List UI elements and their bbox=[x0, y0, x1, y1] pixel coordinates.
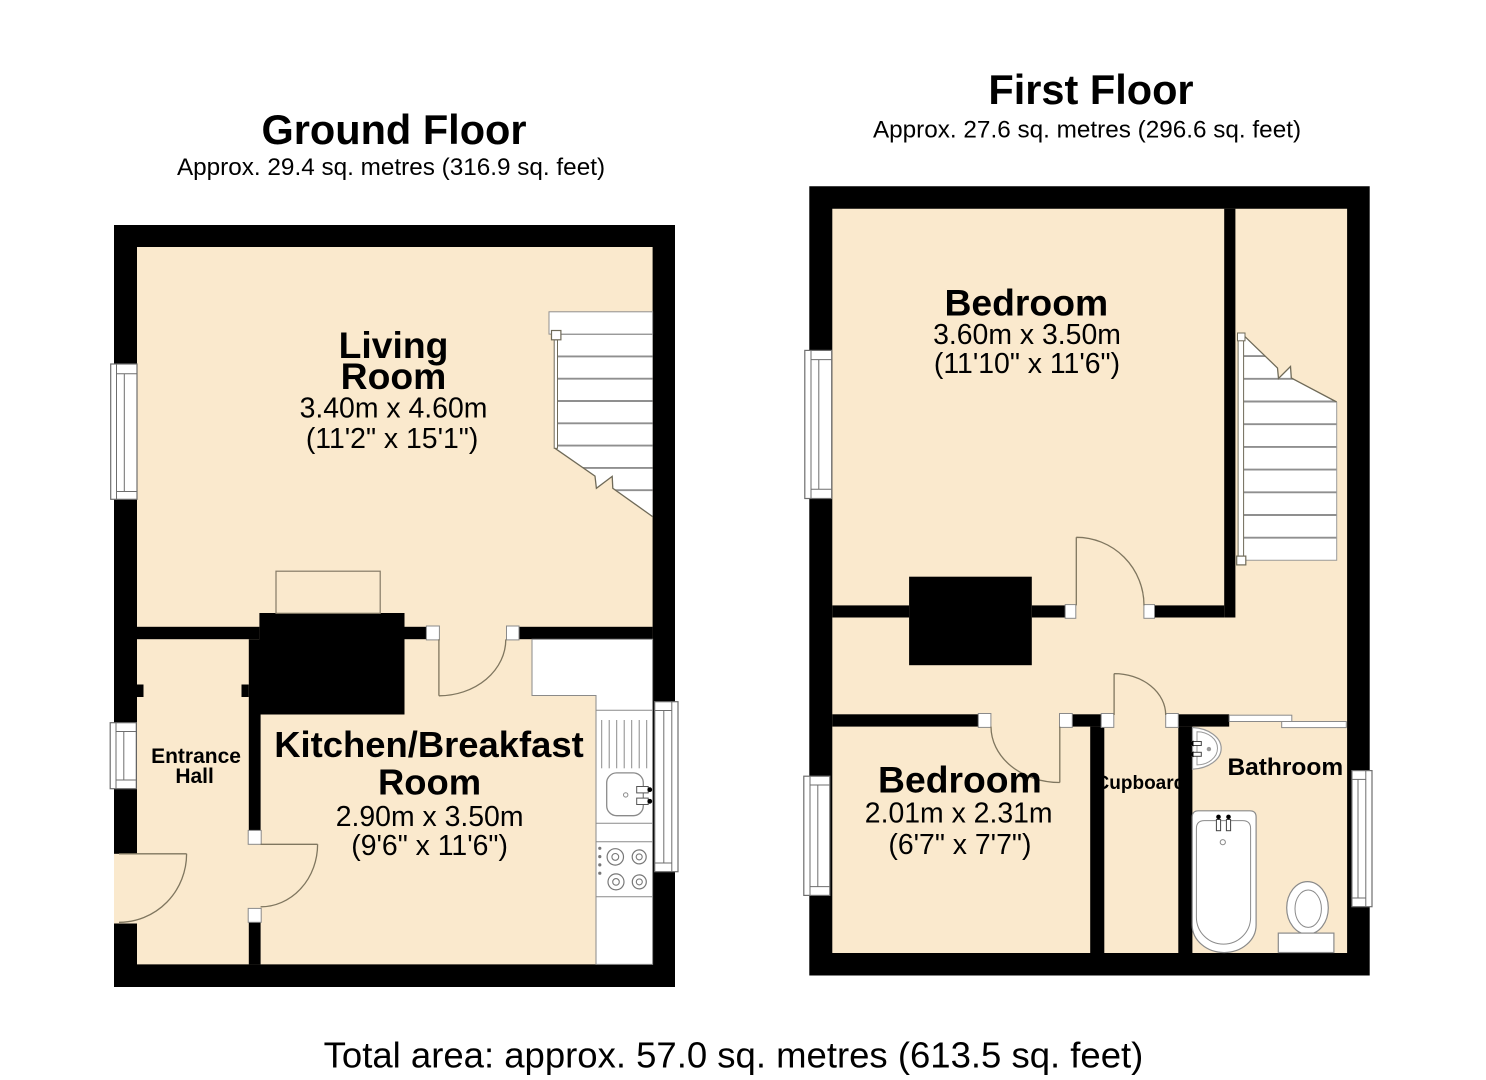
svg-text:2.90m x 3.50m: 2.90m x 3.50m bbox=[336, 801, 524, 833]
svg-text:Approx. 29.4 sq. metres (316.9: Approx. 29.4 sq. metres (316.9 sq. feet) bbox=[177, 154, 605, 181]
svg-text:Approx. 27.6 sq. metres (296.6: Approx. 27.6 sq. metres (296.6 sq. feet) bbox=[873, 117, 1301, 144]
svg-text:(11'2" x 15'1"): (11'2" x 15'1") bbox=[306, 423, 479, 455]
svg-text:(6'7" x 7'7"): (6'7" x 7'7") bbox=[888, 829, 1031, 861]
svg-text:Total area: approx. 57.0 sq. m: Total area: approx. 57.0 sq. metres (613… bbox=[324, 1034, 1144, 1075]
svg-text:3.40m x 4.60m: 3.40m x 4.60m bbox=[300, 393, 488, 425]
svg-text:Ground Floor: Ground Floor bbox=[261, 106, 526, 153]
svg-text:Hall: Hall bbox=[175, 765, 214, 788]
svg-text:3.60m x 3.50m: 3.60m x 3.50m bbox=[933, 319, 1121, 351]
svg-text:Cupboard: Cupboard bbox=[1096, 773, 1186, 794]
svg-text:Kitchen/Breakfast: Kitchen/Breakfast bbox=[274, 724, 583, 765]
svg-text:(11'10" x 11'6"): (11'10" x 11'6") bbox=[934, 348, 1120, 380]
svg-text:2.01m x 2.31m: 2.01m x 2.31m bbox=[865, 798, 1053, 830]
svg-text:Bedroom: Bedroom bbox=[944, 282, 1108, 324]
svg-text:Room: Room bbox=[378, 761, 481, 802]
svg-text:First Floor: First Floor bbox=[988, 66, 1193, 113]
svg-text:(9'6" x 11'6"): (9'6" x 11'6") bbox=[351, 830, 508, 862]
svg-text:Room: Room bbox=[341, 355, 447, 397]
svg-text:Bathroom: Bathroom bbox=[1227, 754, 1343, 781]
svg-text:Bedroom: Bedroom bbox=[878, 758, 1042, 800]
